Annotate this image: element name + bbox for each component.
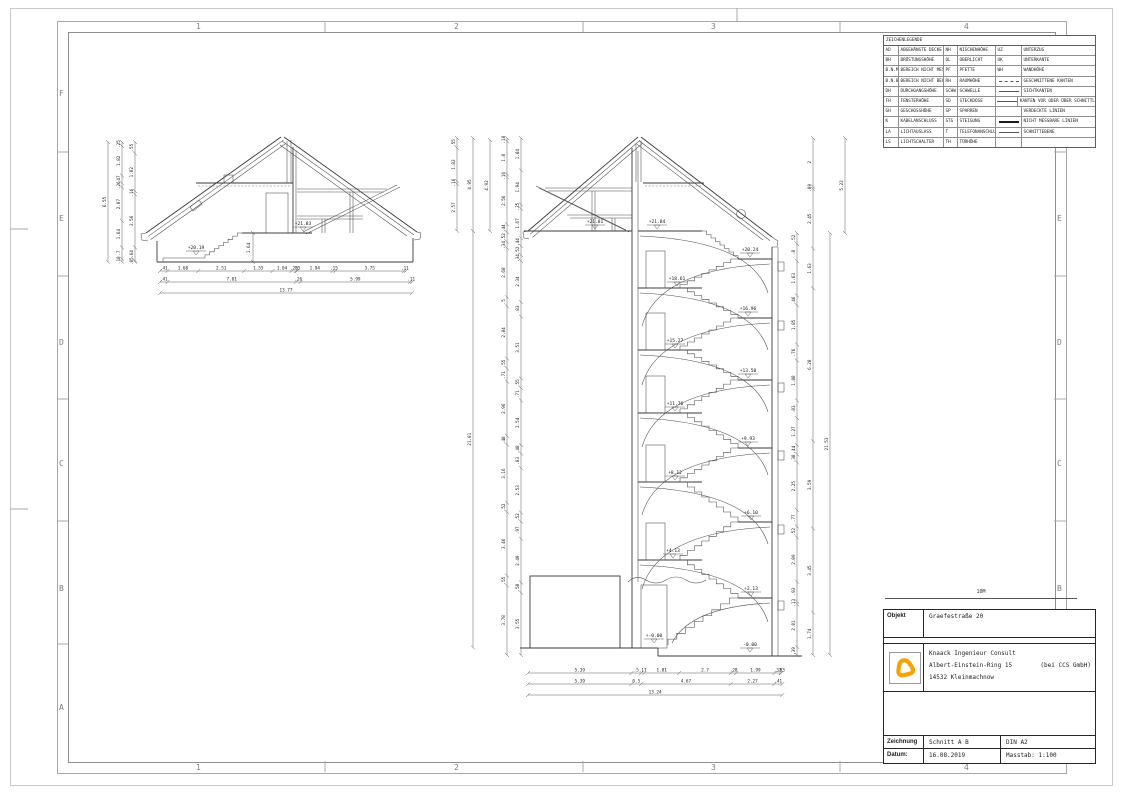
legend-abbr: SD [944,97,958,106]
masstab-value: Masstab: 1:100 [1001,749,1095,763]
legend-abbr: RH [944,77,958,86]
legend-table: ZEICHENLEGENDE ADABGEHÄNGTE DECKENHNISCH… [883,35,1096,148]
dim-text: .16 [129,188,135,196]
dim-text: +-0.00 [646,633,663,639]
dim-text: .83 [515,457,521,465]
dim-text: .97 [515,526,521,534]
dim-text: .16 [501,171,507,179]
company-name: Knaack Ingenieur Consult [929,648,1091,660]
level-marker [747,648,753,652]
dim-text: 13.24 [649,689,662,695]
dim-text: .44 [501,224,507,232]
format-value: DIN A2 [1001,736,1095,748]
dim-text: +2.13 [744,586,758,592]
legend-row: BHBRÜSTUNGSHÖHEOLOBERLICHTUKUNTERKANTE [884,56,1095,66]
legend-label: TÜRHÖHE [958,138,996,147]
legend-label: KANTEN VOR ODER ÜBER SCHNITTLINIEN [1018,97,1095,106]
dim-text: 1.04 [277,265,288,271]
dim-text: .18 [501,135,507,143]
dim-text: .52 [515,513,521,521]
legend-abbr: T [944,128,958,137]
legend-label: NISCHENHÖHE [958,46,996,55]
dim-text: 2.56 [501,195,507,206]
dim-text: .55 [501,359,507,367]
dim-text: 2.68 [501,267,507,278]
dim-text: 1.88 [791,375,797,386]
dim-text: .34 [515,254,521,262]
level-marker [672,407,678,411]
left-section-drawing: +20.19+21.831.64 [141,137,421,264]
dim-text: 21.81 [467,432,473,445]
legend-row: ADABGEHÄNGTE DECKENHNISCHENHÖHEUZUNTERZU… [884,46,1095,56]
dim-text: .76 [791,348,797,356]
legend-abbr: B.N.B [884,77,899,86]
dim-text: 1.63 [791,273,797,284]
dim-text: .52 [501,503,507,511]
dim-text: .55 [501,576,507,584]
legend-label: SCHNITTEBENE [1022,128,1055,137]
dim-text: 4.95 [467,179,473,190]
objekt-value: Graefestraße 20 [924,610,1095,637]
legend-sample-empty [996,107,1022,116]
dim-text: 5.99 [350,276,361,282]
dim-text: 1.82 [129,167,135,178]
legend-label [1022,138,1024,147]
dim-text: .83 [515,305,521,313]
datum-value: 16.08.2019 [924,749,1001,763]
dim-text: .13 [791,599,797,607]
dim-text: .8 [791,250,797,256]
dim-text: 3.78 [501,615,507,626]
dim-text: 2.54 [515,417,521,428]
dim-text: .55 [515,379,521,387]
dim-text: .48 [501,436,507,444]
logo-cell [884,644,924,691]
level-marker [651,639,657,643]
logo-ring-icon [890,653,920,683]
dim-text: .18 [116,256,122,264]
dim-text: .48 [515,445,521,453]
dim-text: .25 [515,202,521,210]
legend-abbr: FH [884,97,899,106]
legend-label: VERDECKTE LINIEN [1022,107,1065,116]
legend-line-sample-icon [996,117,1022,126]
dim-text: .11 [401,265,409,271]
level-marker [745,374,751,378]
dim-text: .52 [501,233,507,241]
dim-text: 1.68 [178,265,189,271]
dim-text: .25 [116,140,122,148]
legend-abbr: NH [944,46,958,55]
dim-text: 3.75 [364,265,375,271]
dim-text: .03 [777,667,785,673]
dim-text: 3.46 [501,538,507,549]
dim-text: +13.50 [740,368,757,374]
legend-line-sample-icon [996,77,1022,86]
legend-label: STEIGUNG [958,117,996,126]
company-address: Knaack Ingenieur Consult Albert-Einstein… [924,644,1095,691]
dim-text: .15 [330,265,338,271]
legend-label: SICHTKANTEN [1022,87,1052,96]
legend-row: DHDURCHGANGSHÖHESCHWSCHWELLESICHTKANTEN [884,87,1095,97]
dim-text: .44 [791,445,797,453]
legend-abbr: K [884,117,899,126]
dim-text: 1.8 [501,154,507,162]
dim-text: 2.7 [701,667,709,673]
legend-line-sample-icon [996,87,1022,96]
dim-text: .09 [807,184,813,192]
zeichnung-value: Schnitt A B [924,736,1001,748]
dim-text: 2.09 [791,554,797,565]
zeichnung-label: Zeichnung [884,736,924,748]
dim-text: 3.45 [807,565,813,576]
dim-text: 2.96 [501,403,507,414]
legend-label: BEREICH NICHT BEGEHBAR [899,77,944,86]
dim-text: +8.12 [668,470,682,476]
dim-text: .71 [515,390,521,398]
dim-text: 6.28 [807,359,813,370]
legend-title: ZEICHENLEGENDE [884,36,1095,46]
legend-row: B.N.BBEREICH NICHT BEGEHBARRHRAUMHÖHEGES… [884,77,1095,87]
level-marker [745,442,751,446]
level-marker [672,476,678,480]
dim-text: .26 [116,181,122,189]
dim-text: 2 [807,161,813,164]
legend-label: STECKDOSE [958,97,996,106]
dim-text: .28 [730,667,738,673]
legend-label: LICHTSCHALTER [899,138,944,147]
objekt-row: Objekt Graefestraße 20 [884,610,1095,638]
dim-text: .55 [451,139,457,147]
dim-text: +11.76 [667,401,684,407]
drawing-sheet: { "grid": {"cols": ["1","2","3","4"], "r… [0,0,1123,794]
legend-line-sample-icon [996,128,1022,137]
dim-text: .5 [501,299,507,305]
dim-text: 2.49 [515,555,521,566]
title-block: Objekt Graefestraße 20 Knaack Ingenieur … [883,609,1096,764]
dim-text: +4.13 [666,548,680,554]
dim-text: 1.64 [116,229,122,240]
legend-label: UNTERKANTE [1022,56,1049,65]
legend-row: LSLICHTSCHALTERTHTÜRHÖHE [884,138,1095,147]
legend-abbr: BH [884,56,899,65]
dim-text: .44 [515,238,521,246]
level-marker [745,312,751,316]
company-city: 14532 Kleinmachnow [929,672,1091,684]
dim-text: 1.81 [657,667,668,673]
dim-text: 2.34 [515,276,521,287]
dim-text: .41 [774,678,782,684]
dim-text: 1.55 [253,265,264,271]
zeichnung-row: Zeichnung Schnitt A B DIN A2 [884,736,1095,749]
legend-abbr: STG [944,117,958,126]
legend-abbr: UK [996,56,1022,65]
dim-text: .52 [791,234,797,242]
dim-text: .41 [160,265,168,271]
dim-text: +20.24 [742,247,759,253]
legend-label: BEREICH NICHT MESSBAR [899,66,944,75]
dim-text: +9.93 [741,436,755,442]
legend-label: TELEFONANSCHLUSS [958,128,996,137]
legend-abbr: WH [996,66,1022,75]
dim-text: .05 [129,257,135,265]
dim-text: -0.00 [743,642,757,648]
dim-text: .71 [501,371,507,379]
dim-text: 2.57 [451,202,457,213]
dim-text: +21.83 [295,221,312,227]
legend-label: GESCHOSSHÖHE [899,107,944,116]
dim-text: 5.39 [575,667,586,673]
legend-label: RAUMHÖHE [958,77,996,86]
legend-abbr: OL [944,56,958,65]
dim-text: .83 [791,405,797,413]
dim-text: 7.01 [226,276,237,282]
legend-label: FENSTERHÖHE [899,97,944,106]
dim-text: .16 [451,178,457,186]
legend-abbr: GH [884,107,899,116]
dim-text: 1.94 [515,182,521,193]
level-marker [300,227,306,231]
dim-text: 1.94 [310,265,321,271]
scale-bar [885,598,1077,599]
dim-text: 1.64 [246,242,252,253]
dim-text: 2.84 [501,327,507,338]
dim-text: .52 [515,246,521,254]
dim-text: .17 [639,667,647,673]
legend-abbr: AD [884,46,899,55]
dim-text: 1.82 [451,159,457,170]
legend-label: SPARREN [958,107,996,116]
scale-bar-label: 10M [885,589,1077,595]
legend-abbr: DH [884,87,899,96]
datum-row: Datum: 16.08.2019 Masstab: 1:100 [884,749,1095,763]
legend-abbr: B.N.M [884,66,899,75]
dim-text: 5.22 [839,180,845,191]
legend-row: FHFENSTERHÖHESDSTECKDOSEKANTEN VOR ODER … [884,97,1095,107]
legend-label: GESCHNITTENE KANTEN [1022,77,1073,86]
dim-text: 1.82 [116,155,122,166]
legend-label: WANDHÖHE [1022,66,1044,75]
legend-row: LALICHTAUSLASSTTELEFONANSCHLUSSSCHNITTEB… [884,128,1095,138]
dim-text: .05 [293,265,301,271]
company-street: Albert-Einstein-Ring 15 [929,660,1012,672]
dim-text: 4.67 [681,678,692,684]
dim-text: 1.84 [515,149,521,160]
dim-text: .52 [791,528,797,536]
dim-text: 21.53 [824,437,830,450]
company-logo [889,652,921,684]
dim-text: .58 [515,583,521,591]
legend-label: OBERLICHT [958,56,996,65]
dim-text: .55 [129,143,135,151]
level-marker [670,554,676,558]
dim-text: .34 [501,241,507,249]
dim-text: .38 [791,454,797,462]
dim-text: 1.99 [750,667,761,673]
dim-text: +21.84 [649,219,666,225]
legend-label: LICHTAUSLASS [899,128,944,137]
legend-line-sample-icon [996,97,1018,106]
dim-text: .26 [294,276,302,282]
dim-text: .64 [129,250,135,258]
dim-text: 2.07 [116,199,122,210]
dim-text: 2.01 [791,620,797,631]
legend-row: B.N.MBEREICH NICHT MESSBARPFPFETTEWHWAND… [884,66,1095,76]
dim-text: .7 [116,250,122,256]
legend-label: ABGEHÄNGTE DECKE [899,46,944,55]
level-marker [674,282,680,286]
legend-label: NICHT MESSBARE LINIEN [1022,117,1078,126]
legend-abbr: SCHW [944,87,958,96]
legend-row: GHGESCHOSSHÖHESPSPARRENVERDECKTE LINIEN [884,107,1095,117]
dim-text: 2.53 [515,485,521,496]
dim-text: +16.96 [740,306,757,312]
dim-text: 3.51 [515,342,521,353]
dim-text: 3.16 [501,468,507,479]
legend-abbr: TH [944,138,958,147]
dim-text: .46 [791,296,797,304]
dim-text: 3.59 [807,479,813,490]
datum-label: Datum: [884,749,924,763]
dim-text: .11 [407,276,415,282]
legend-abbr: SP [944,107,958,116]
legend-abbr: PF [944,66,958,75]
dim-text: .41 [160,276,168,282]
legend-label: UNTERZUG [1022,46,1044,55]
dim-text: 2.27 [747,678,758,684]
dim-text: 2.56 [129,215,135,226]
dim-text: .93 [791,587,797,595]
dim-text: +21.81 [587,219,604,225]
legend-label: KABELANSCHLUSS [899,117,944,126]
legend-label: PFETTE [958,66,996,75]
legend-label: SCHWELLE [958,87,996,96]
level-marker [193,251,199,255]
dim-text: +6.10 [744,510,758,516]
dim-text: 1.85 [791,319,797,330]
dim-text: 6.55 [102,196,108,207]
dim-text: +15.27 [667,338,684,344]
legend-abbr: LS [884,138,899,147]
legend-row: KKABELANSCHLUSSSTGSTEIGUNGNICHT MESSBARE… [884,117,1095,127]
dim-text: 2.51 [216,265,227,271]
dim-text: 13.77 [280,287,293,293]
dim-text: 2.25 [791,481,797,492]
dim-text: 5.39 [575,678,586,684]
company-row: Knaack Ingenieur Consult Albert-Einstein… [884,644,1095,692]
company-note: (bei CCS GmbH) [1040,660,1091,672]
legend-label: BRÜSTUNGSHÖHE [899,56,944,65]
level-marker [654,225,660,229]
legend-label: DURCHGANGSHÖHE [899,87,944,96]
dim-text: 3.55 [515,618,521,629]
dim-text: +20.19 [188,245,205,251]
dim-text: +18.61 [669,276,686,282]
dim-text: 1.27 [791,426,797,437]
right-section-drawing: +21.81+21.84+20.24+18.61+16.96+15.27+13.… [520,137,802,656]
objekt-label: Objekt [884,610,924,637]
dim-text: 4.92 [484,180,490,191]
legend-sample-empty [996,138,1022,147]
dim-text: .77 [791,514,797,522]
dim-text: .39 [791,647,797,655]
legend-abbr: UZ [996,46,1022,55]
level-marker [747,253,753,257]
legend-abbr: LA [884,128,899,137]
dim-text: 2.45 [807,213,813,224]
dim-text: 1.67 [515,218,521,229]
empty-row [884,692,1095,736]
dim-text: 0.5 [632,678,640,684]
dim-text: 1.63 [807,263,813,274]
dim-text: 1.74 [807,628,813,639]
left-drawing-dimensions: .411.682.511.551.04.25.051.94.153.75.11.… [102,140,415,295]
